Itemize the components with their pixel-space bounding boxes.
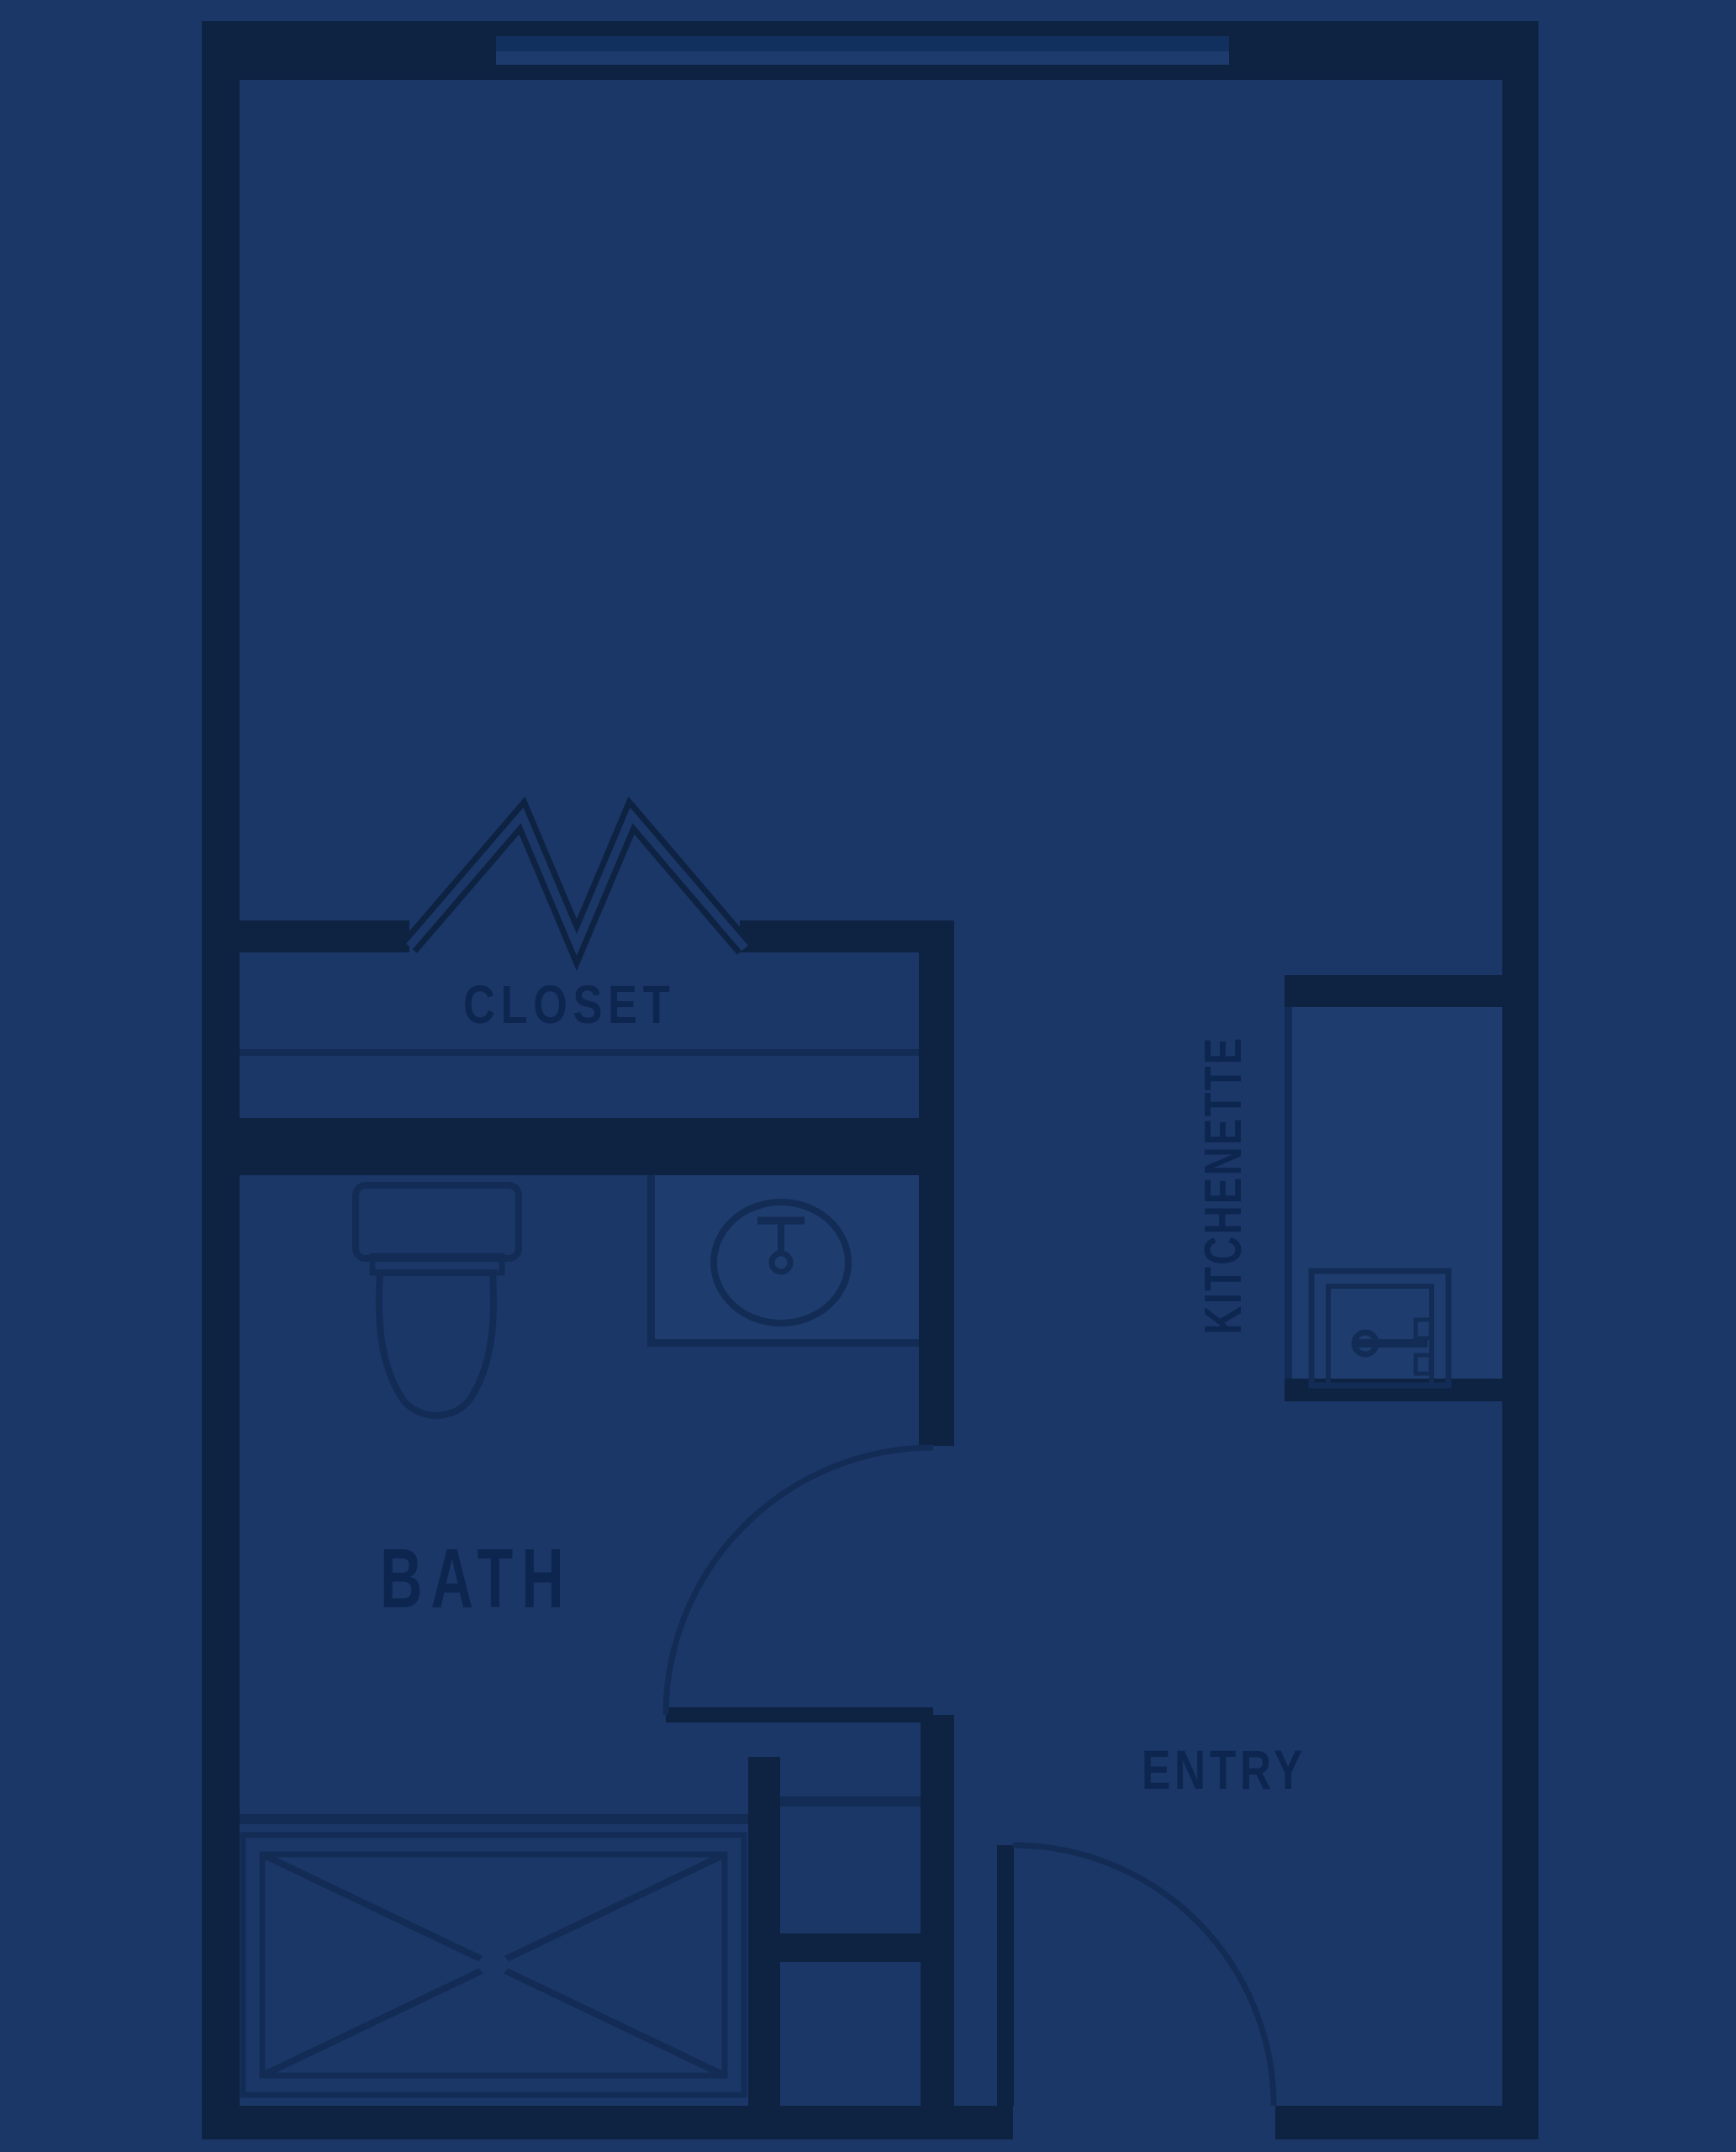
entry-door-arc — [1013, 1845, 1274, 2106]
room-label-bath: BATH — [380, 1537, 572, 1621]
room-label-kitchenette: KITCHENETTE — [1198, 1036, 1250, 1335]
shower-icon — [243, 1835, 744, 2095]
toilet-icon — [356, 1185, 519, 1416]
room-label-entry: ENTRY — [1142, 1742, 1306, 1797]
floor-plan: CLOSET BATH KITCHENETTE ENTRY — [0, 0, 1736, 2152]
bath-door-arc — [666, 1448, 933, 1715]
sink-icon — [714, 1202, 848, 1323]
fixtures-layer — [0, 0, 1736, 2152]
room-label-closet: CLOSET — [463, 978, 675, 1031]
refrigerator-icon — [1311, 1271, 1448, 1385]
closet-hanger-zigzag-icon — [409, 815, 745, 948]
